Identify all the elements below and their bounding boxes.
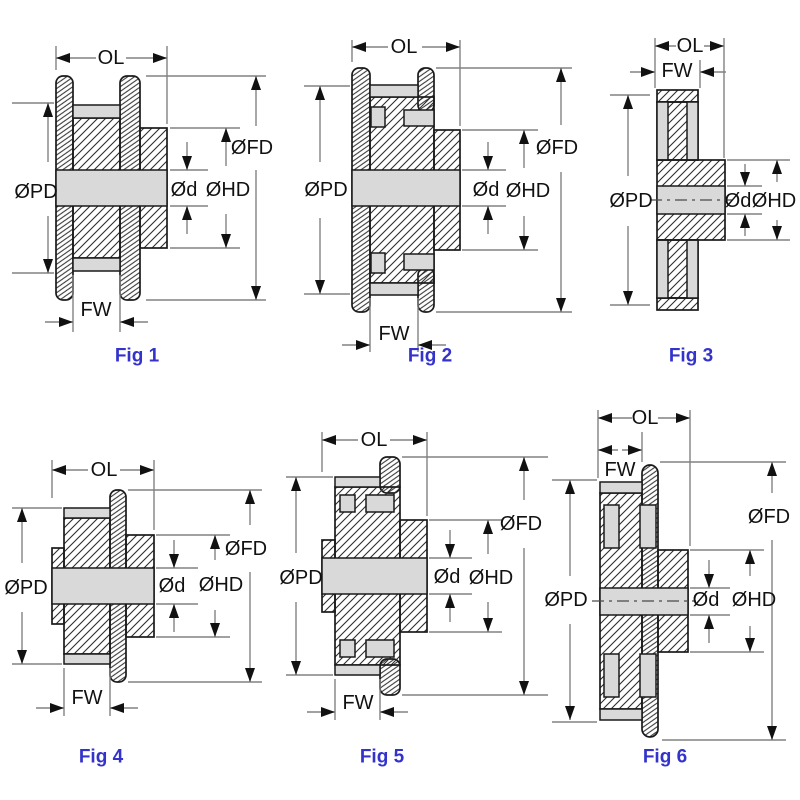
fig3-relief-bottom-right [687, 240, 698, 298]
fig2-label-ol: OL [391, 36, 418, 58]
fig3-relief-top-left [657, 102, 668, 160]
fig6-label-fw: FW [604, 459, 635, 481]
fig5-block-bottom-left [340, 640, 355, 657]
fig4-belt-seat-bottom [64, 654, 110, 664]
fig2-belt-seat-bottom [370, 283, 418, 295]
fig6-relief-bottom-left [604, 654, 619, 697]
fig3-label-hd: ØHD [752, 190, 796, 212]
fig5-block-top-right [366, 495, 394, 512]
fig5-label-pd: ØPD [279, 567, 322, 589]
figure-6-caption: Fig 6 [643, 747, 687, 768]
fig5-label-d: Ød [434, 566, 461, 588]
pulley-diagrams-canvas: OL ØPD ØFD ØHD Ød FW Fig 1 OL ØPD [0, 0, 800, 800]
fig1-belt-seat-bottom [73, 258, 120, 271]
fig2-block-top-right [404, 110, 434, 126]
fig2-belt-seat-top [370, 85, 418, 97]
fig3-relief-top-right [687, 102, 698, 160]
fig6-label-d: Ød [693, 589, 720, 611]
fig5-bore [322, 558, 427, 594]
fig1-label-hd: ØHD [206, 179, 250, 201]
fig5-belt-seat-top [335, 477, 380, 487]
fig6-belt-seat-bottom [600, 709, 642, 720]
fig1-bore [56, 170, 167, 206]
diagram-sheet: OL ØPD ØFD ØHD Ød FW Fig 1 OL ØPD [0, 0, 800, 800]
fig4-label-d: Ød [159, 575, 186, 597]
fig3-relief-bottom-left [657, 240, 668, 298]
fig3-label-ol: OL [677, 35, 704, 57]
fig4-label-pd: ØPD [4, 577, 47, 599]
fig6-relief-top-right [640, 505, 656, 548]
fig6-label-fd: ØFD [748, 506, 790, 528]
fig4-label-hd: ØHD [199, 574, 243, 596]
fig5-block-top-left [340, 495, 355, 512]
fig6-belt-seat-top [600, 482, 642, 493]
fig2-label-fw: FW [378, 323, 409, 345]
figure-4-caption: Fig 4 [79, 747, 124, 768]
fig3-label-d: Ød [725, 190, 752, 212]
fig3-label-fw: FW [661, 60, 692, 82]
fig2-label-hd: ØHD [506, 180, 550, 202]
fig5-label-fw: FW [342, 692, 373, 714]
fig2-bore [352, 170, 460, 206]
fig2-label-pd: ØPD [304, 179, 347, 201]
fig5-belt-seat-bottom [335, 665, 380, 675]
figure-5-caption: Fig 5 [360, 747, 405, 768]
fig3-bottom-land [657, 298, 698, 310]
fig1-label-pd: ØPD [14, 181, 57, 203]
fig5-label-hd: ØHD [469, 567, 513, 589]
fig2-block-bottom-left [371, 253, 385, 273]
fig4-bore [52, 568, 154, 604]
fig2-label-d: Ød [473, 179, 500, 201]
figure-1-caption: Fig 1 [115, 346, 160, 367]
fig3-top-land [657, 90, 698, 102]
fig1-label-ol: OL [98, 47, 125, 69]
fig5-block-bottom-right [366, 640, 394, 657]
figure-2-caption: Fig 2 [408, 346, 452, 367]
fig6-label-pd: ØPD [544, 589, 587, 611]
fig3-label-pd: ØPD [609, 190, 652, 212]
fig6-label-hd: ØHD [732, 589, 776, 611]
fig6-relief-top-left [604, 505, 619, 548]
fig5-label-ol: OL [361, 429, 388, 451]
fig1-label-fw: FW [80, 299, 111, 321]
fig2-block-bottom-right [404, 254, 434, 270]
figure-3-caption: Fig 3 [669, 346, 713, 367]
fig2-label-fd: ØFD [536, 137, 578, 159]
fig5-label-fd: ØFD [500, 513, 542, 535]
fig6-label-ol: OL [632, 407, 659, 429]
fig4-label-ol: OL [91, 459, 118, 481]
fig1-label-fd: ØFD [231, 137, 273, 159]
fig1-belt-seat-top [73, 105, 120, 118]
fig4-label-fd: ØFD [225, 538, 267, 560]
fig4-label-fw: FW [71, 687, 102, 709]
fig1-label-d: Ød [171, 179, 198, 201]
fig4-belt-seat-top [64, 508, 110, 518]
fig6-relief-bottom-right [640, 654, 656, 697]
fig2-block-top-left [371, 107, 385, 127]
